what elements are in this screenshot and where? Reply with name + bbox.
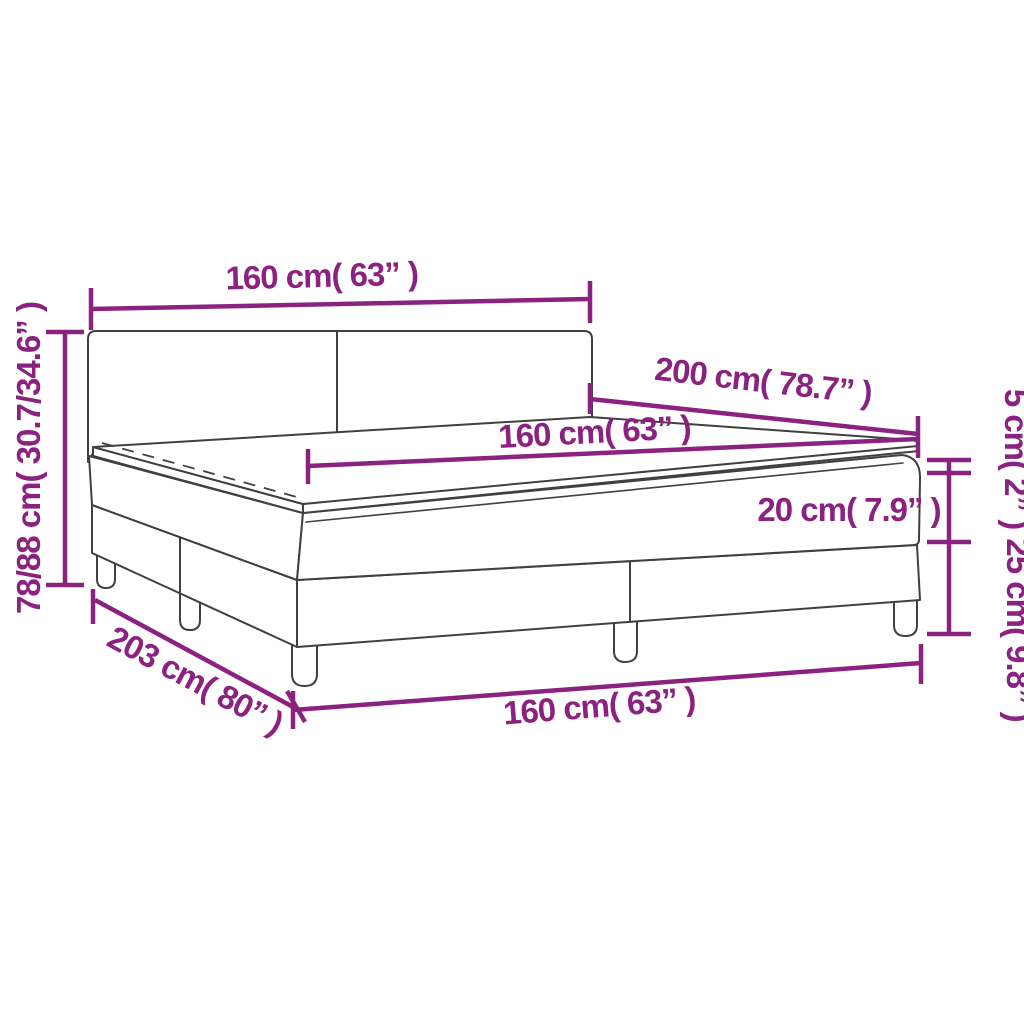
label-total-length: 203 cm( 80” )	[102, 618, 289, 741]
diagram-canvas: 160 cm( 63” ) 78/88 cm( 30.7/34.6” ) 200…	[0, 0, 1024, 1024]
frame-leg-front-mid	[614, 618, 637, 662]
frame-leg-front-left	[292, 642, 317, 686]
bed-dimension-diagram: 160 cm( 63” ) 78/88 cm( 30.7/34.6” ) 200…	[0, 0, 1024, 1024]
label-width-top: 160 cm( 63” )	[225, 254, 418, 296]
label-base-height: 25 cm( 9.8” )	[1000, 538, 1024, 721]
frame-leg-front-right	[894, 598, 917, 636]
label-width-bottom: 160 cm( 63” )	[502, 680, 697, 732]
dim-right-bracket	[927, 460, 971, 634]
label-mattress-thickness: 20 cm( 7.9” )	[757, 491, 940, 528]
dim-total-height	[46, 332, 84, 585]
label-length: 200 cm( 78.7” )	[653, 350, 874, 411]
label-topper-thickness: 5 cm( 2” )	[998, 389, 1024, 529]
label-total-height: 78/88 cm( 30.7/34.6” )	[10, 302, 47, 614]
